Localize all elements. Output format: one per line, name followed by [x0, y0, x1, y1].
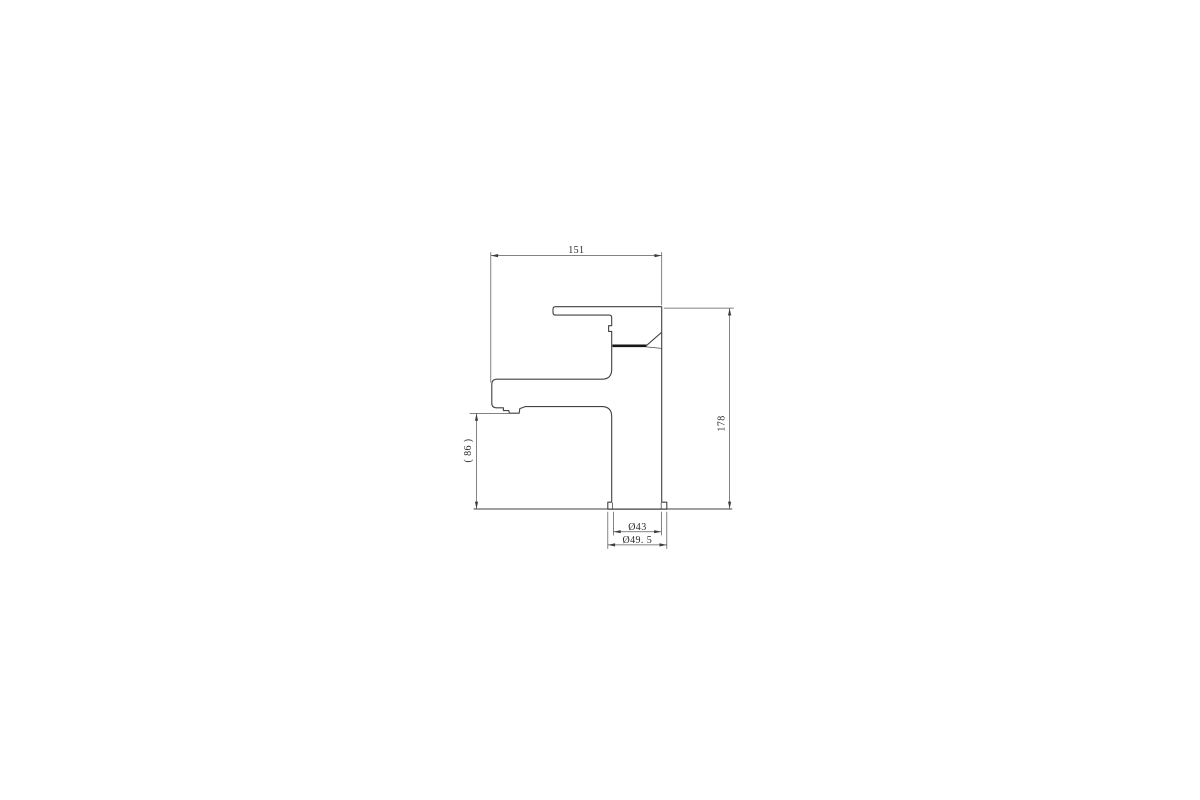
arrowhead-left: [491, 254, 498, 257]
dimension-overall-height: 178: [664, 308, 734, 509]
dimension-label-overall-width: 151: [568, 245, 584, 256]
dimension-overall-width: 151: [491, 245, 662, 383]
arrowhead-up: [475, 414, 478, 421]
faucet-body-outline: [492, 307, 667, 510]
dimension-label-overall-height: 178: [717, 415, 728, 431]
arrowhead-up: [728, 308, 731, 315]
handle-base-slant-line: [646, 333, 661, 346]
dimension-label-base-diameter: Ø49. 5: [622, 535, 652, 546]
dimension-spout-outlet-height: ( 86 ): [463, 413, 517, 509]
faucet-outline: [474, 307, 732, 510]
arrowhead-right: [654, 254, 661, 257]
handle-base-wedge-line: [646, 347, 661, 349]
arrowhead-left: [608, 543, 615, 546]
dimension-body-diameter: Ø43: [613, 512, 661, 536]
arrowhead-down: [475, 502, 478, 509]
technical-drawing: 151 178 ( 86 ) Ø43: [440, 225, 760, 565]
arrowhead-down: [728, 502, 731, 509]
arrowhead-right: [654, 530, 661, 533]
page-background: 151 178 ( 86 ) Ø43: [0, 0, 1200, 800]
dimension-label-body-diameter: Ø43: [628, 522, 646, 533]
arrowhead-left: [614, 530, 621, 533]
arrowhead-right: [660, 543, 667, 546]
dimension-label-spout-outlet-height: ( 86 ): [463, 438, 474, 462]
